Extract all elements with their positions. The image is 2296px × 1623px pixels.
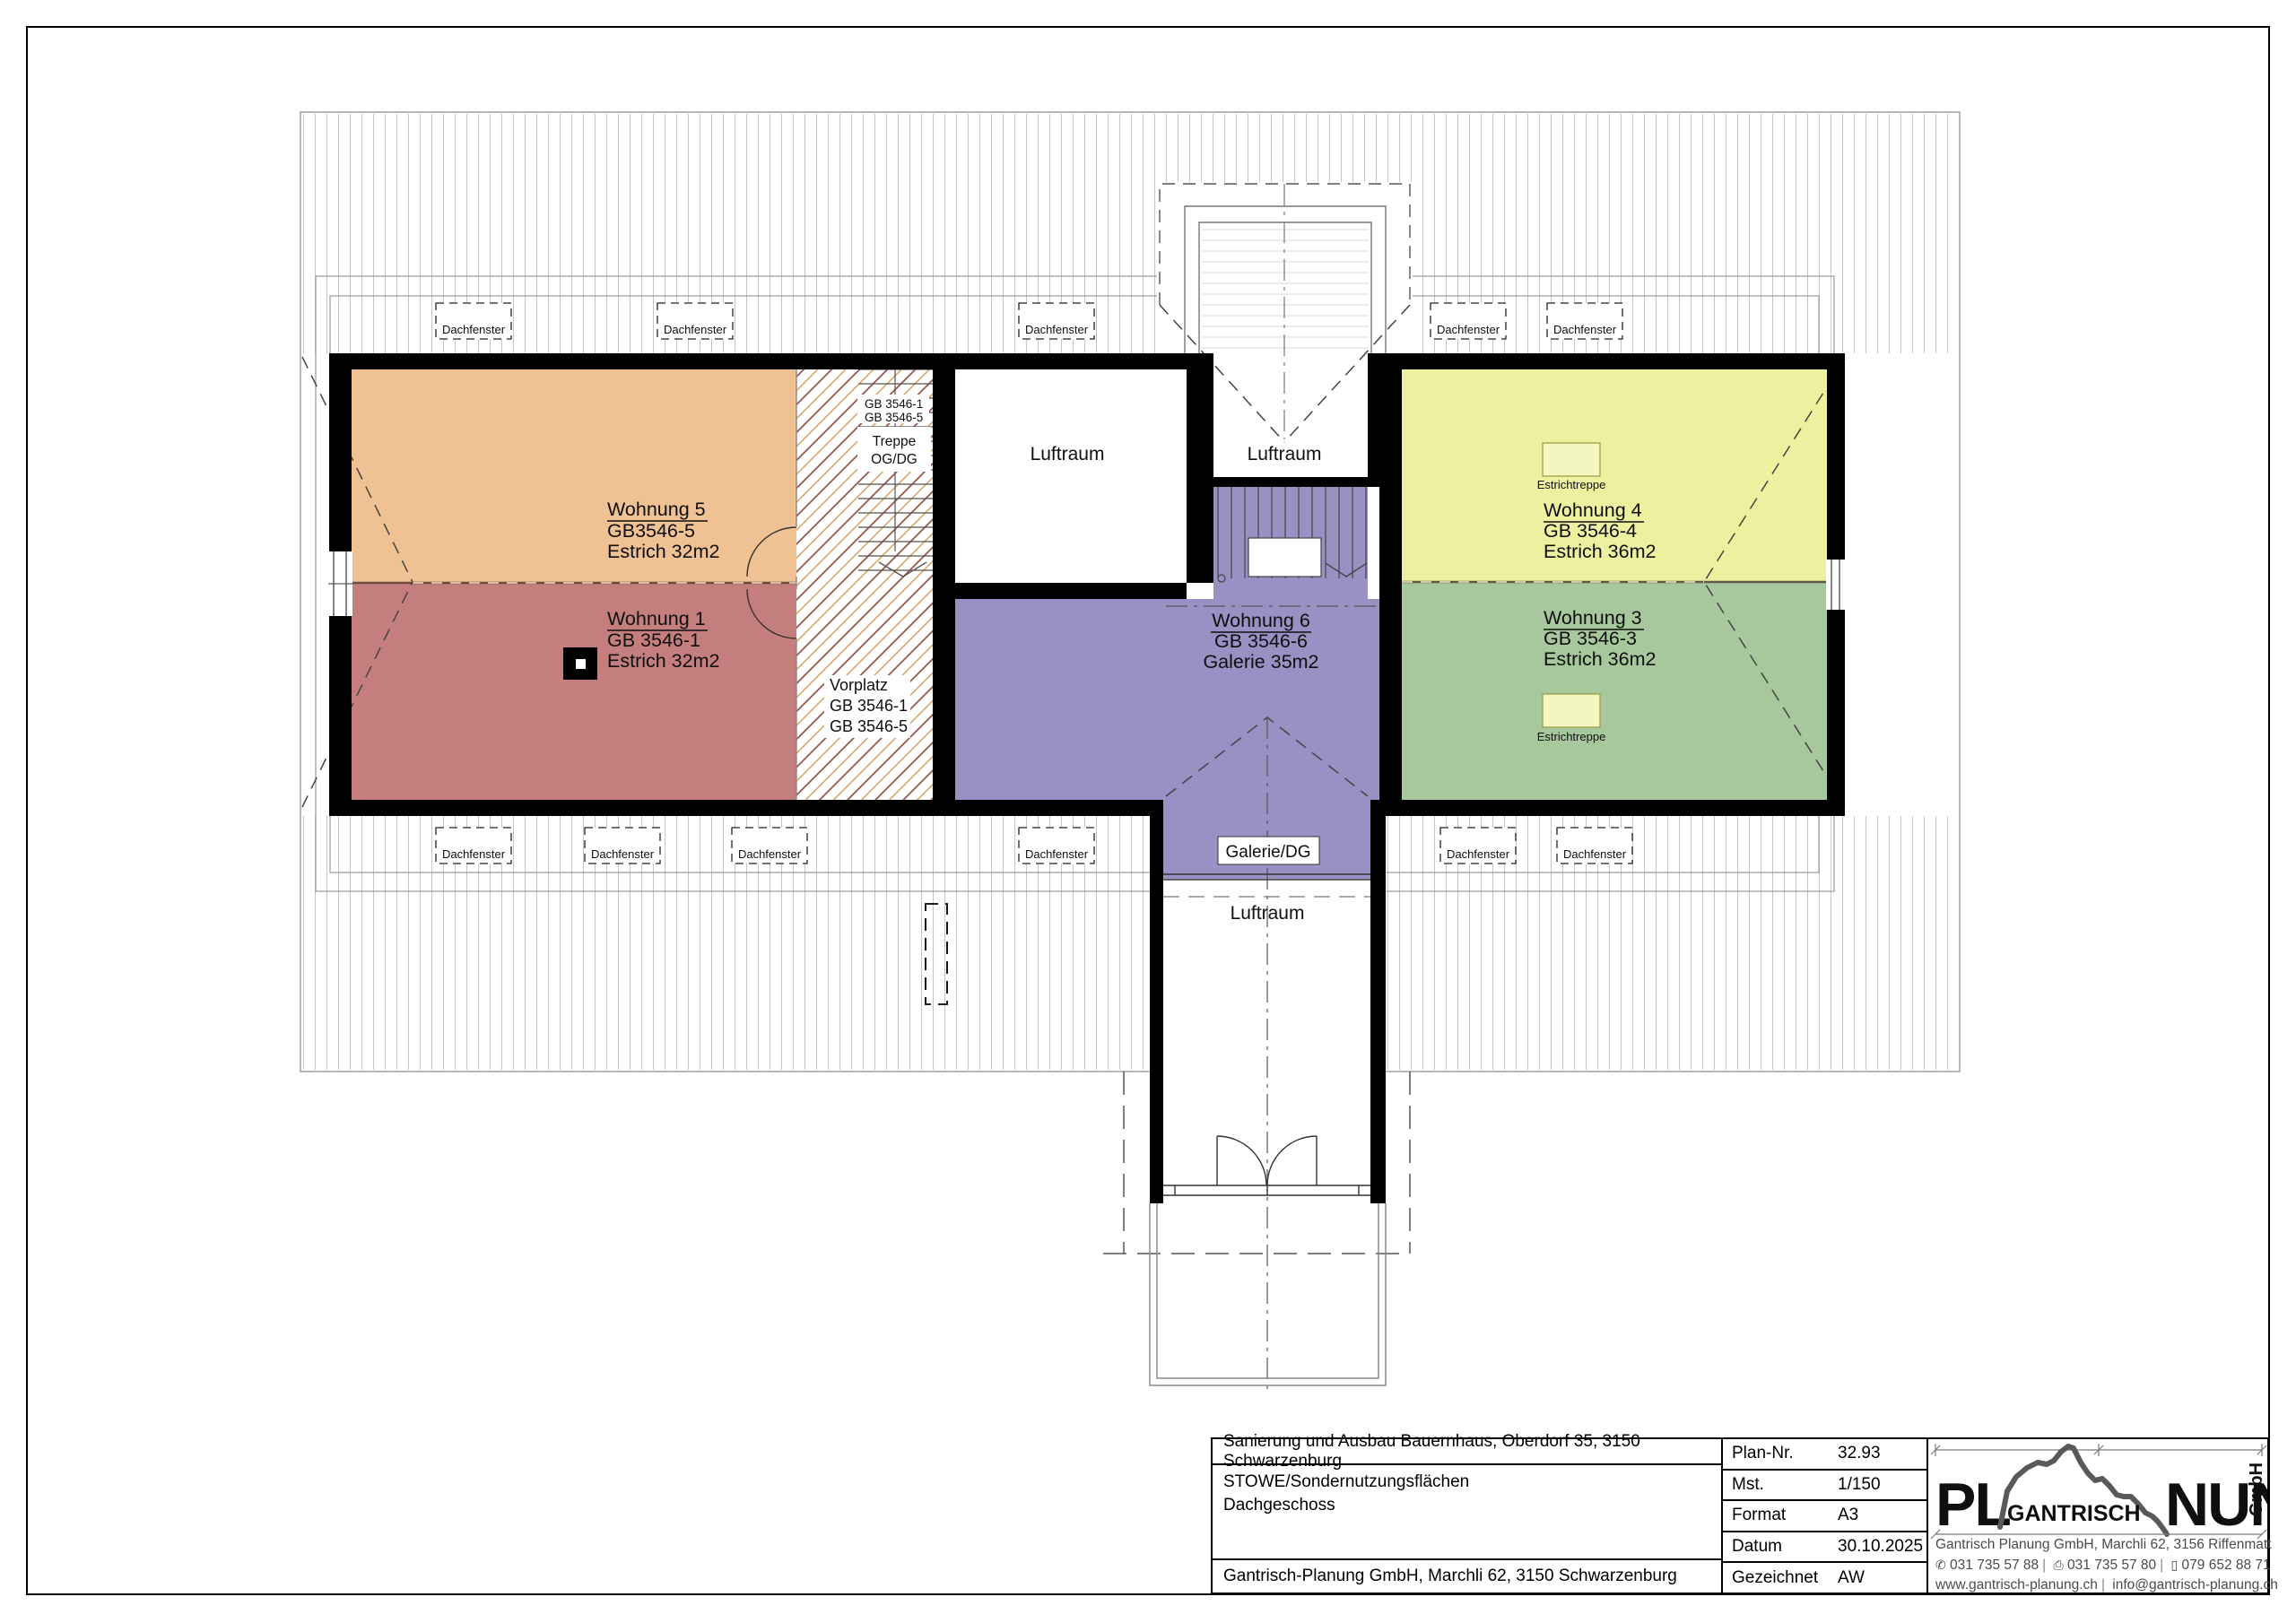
dachfenster-label: Dachfenster (738, 847, 802, 861)
galerie-dg: Galerie/DG (1218, 837, 1319, 864)
plan-meta-table: Plan-Nr. 32.93 Mst. 1/150 Format A3 Datu… (1723, 1439, 1928, 1593)
room-wohnung-1 (352, 583, 796, 800)
luftraum-label-left: Luftraum (1031, 444, 1105, 464)
floor-plan-page: Dachfenster Dachfenster Dachfenster Dach… (0, 0, 2296, 1623)
vorplatz-labels: Vorplatz GB 3546-1 GB 3546-5 (824, 675, 910, 738)
luftraum-label-wing: Luftraum (1231, 903, 1305, 924)
field-format: Format A3 (1723, 1501, 1926, 1532)
room-w4-gb: GB 3546-4 (1544, 520, 1637, 542)
column (563, 647, 597, 680)
gantrisch-logo: PL GANTRISCH NUNG GmbH (1928, 1439, 2267, 1542)
room-w1-gb: GB 3546-1 (607, 629, 700, 651)
roof-hatch-top (302, 114, 1958, 353)
treppe-label-line2: OG/DG (871, 452, 918, 467)
room-w6-name: Wohnung 6 (1212, 610, 1310, 631)
treppe-labels: GB 3546-1 GB 3546-5 Treppe OG/DG (857, 395, 931, 472)
vorplatz-gb2-label: GB 3546-5 (830, 717, 908, 735)
dachfenster-label: Dachfenster (591, 847, 655, 861)
vorplatz-label: Vorplatz (830, 676, 888, 694)
field-plan-nr: Plan-Nr. 32.93 (1723, 1439, 1926, 1471)
room-w5-name: Wohnung 5 (607, 499, 706, 520)
dimension-line-top (1931, 1444, 2266, 1456)
logo-address: Gantrisch Planung GmbH, Marchli 62, 3156… (1935, 1537, 2264, 1553)
room-wohnung-5 (352, 368, 796, 583)
galerie-dg-label: Galerie/DG (1225, 843, 1310, 862)
floor-plan-drawing: Dachfenster Dachfenster Dachfenster Dach… (0, 0, 2296, 1623)
room-w3-name: Wohnung 3 (1544, 607, 1642, 629)
treppe-label-line1: Treppe (873, 434, 917, 449)
plan-subject-line2: Dachgeschoss (1223, 1494, 1721, 1517)
room-w4-name: Wohnung 4 (1544, 499, 1642, 521)
title-block: Sanierung und Ausbau Bauernhaus, Oberdor… (1211, 1437, 2269, 1594)
luftraum-label-top: Luftraum (1248, 444, 1322, 464)
dachfenster-label: Dachfenster (442, 847, 506, 861)
phone-number: 031 735 57 88 (1950, 1558, 2039, 1573)
treppe-gb1-label: GB 3546-1 (865, 397, 923, 411)
company-line: Gantrisch-Planung GmbH, Marchli 62, 3150… (1213, 1560, 1721, 1593)
room-w5-area: Estrich 32m2 (607, 541, 719, 562)
mobile-number: 079 652 88 71 (2182, 1558, 2271, 1573)
estrichtreppe-w4: Estrichtreppe (1537, 443, 1606, 491)
dachfenster-label: Dachfenster (1025, 847, 1089, 861)
estrichtreppe-label: Estrichtreppe (1537, 730, 1606, 743)
plan-subject-line1: STOWE/Sondernutzungsflächen (1223, 1471, 1721, 1494)
dachfenster-label: Dachfenster (1437, 323, 1500, 336)
project-title: Sanierung und Ausbau Bauernhaus, Oberdor… (1213, 1439, 1721, 1465)
fax-number: 031 735 57 80 (2067, 1558, 2156, 1573)
logo-gmbh: GmbH (2247, 1462, 2266, 1516)
field-mst: Mst. 1/150 (1723, 1471, 1926, 1502)
field-datum: Datum 30.10.2025 (1723, 1532, 1926, 1564)
room-w5-gb: GB3546-5 (607, 520, 695, 542)
vorplatz-gb1-label: GB 3546-1 (830, 697, 908, 715)
website: www.gantrisch-planung.ch (1935, 1577, 2098, 1593)
phone-icon: ✆ (1935, 1558, 1946, 1572)
wing-luftraum (1163, 879, 1370, 1203)
logo-web-email: www.gantrisch-planung.ch| info@gantrisch… (1935, 1577, 2264, 1593)
room-w3-gb: GB 3546-3 (1544, 628, 1637, 649)
room-wohnung-6 (955, 599, 1379, 800)
dachfenster-label: Dachfenster (664, 323, 727, 336)
logo-gantrisch: GANTRISCH (2007, 1501, 2141, 1526)
room-w4-area: Estrich 36m2 (1544, 541, 1656, 562)
estrichtreppe-label: Estrichtreppe (1537, 478, 1606, 491)
mobile-icon: ▯ (2171, 1558, 2179, 1572)
dachfenster-label: Dachfenster (442, 323, 506, 336)
window-left (328, 551, 352, 616)
room-w1-name: Wohnung 1 (607, 608, 706, 629)
field-gezeichnet: Gezeichnet AW (1723, 1563, 1926, 1593)
company-logo-block: PL GANTRISCH NUNG GmbH Gantrisch Planung… (1928, 1439, 2267, 1593)
plan-subject: STOWE/Sondernutzungsflächen Dachgeschoss (1213, 1465, 1721, 1560)
room-w6-area: Galerie 35m2 (1203, 651, 1318, 673)
window-right (1826, 560, 1846, 610)
room-w1-area: Estrich 32m2 (607, 650, 719, 672)
logo-phones: ✆ 031 735 57 88| ⎙ 031 735 57 80| ▯ 079 … (1935, 1558, 2264, 1574)
dachfenster-label: Dachfenster (1553, 323, 1617, 336)
treppe-gb2-label: GB 3546-5 (865, 411, 923, 424)
email: info@gantrisch-planung.ch (2112, 1577, 2278, 1593)
room-w6-gb: GB 3546-6 (1214, 630, 1308, 652)
dachfenster-label: Dachfenster (1447, 847, 1510, 861)
dachfenster-label: Dachfenster (1563, 847, 1627, 861)
room-w3-area: Estrich 36m2 (1544, 648, 1656, 670)
fax-icon: ⎙ (2054, 1558, 2064, 1572)
dachfenster-label: Dachfenster (1025, 323, 1089, 336)
estrichtreppe-w3: Estrichtreppe (1537, 694, 1606, 743)
